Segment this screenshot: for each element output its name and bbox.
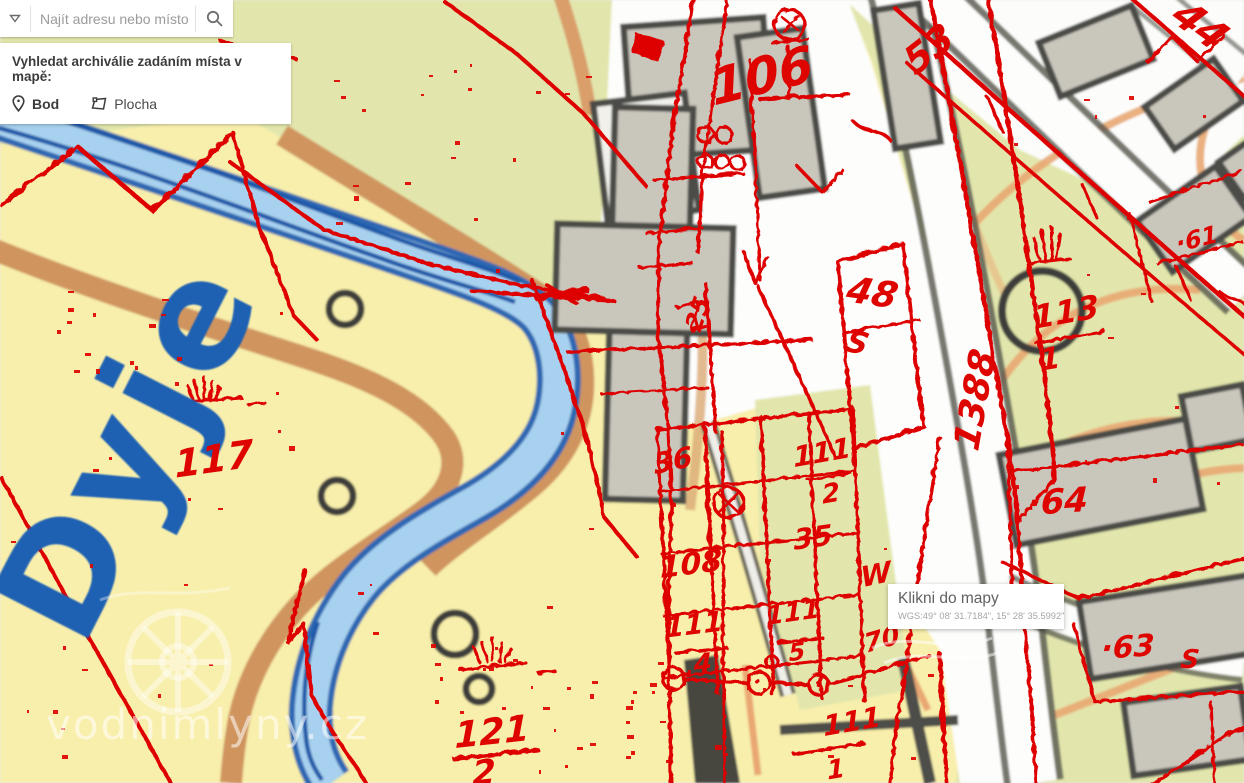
option-plocha-label: Plocha [114, 96, 157, 112]
archive-search-panel: Vyhledat archiválie zadáním místa v mapě… [0, 43, 291, 124]
dropdown-arrow-icon [9, 14, 21, 23]
panel-title: Vyhledat archiválie zadáním místa v mapě… [12, 54, 279, 84]
search-icon [206, 10, 224, 28]
tooltip-title: Klikni do mapy [898, 590, 1054, 608]
panel-options: Bod Plocha [12, 95, 279, 112]
polygon-area-icon [91, 97, 107, 111]
option-bod[interactable]: Bod [12, 95, 59, 112]
search-button[interactable] [196, 0, 233, 37]
tooltip-wgs-coordinates: WGS:49° 08' 31.7184", 15° 28' 35.5992" [898, 611, 1054, 621]
search-dropdown-toggle[interactable] [0, 0, 30, 37]
map-application: 1065344117121248S13881131·64·63S·6136108… [0, 0, 1244, 783]
search-input[interactable] [31, 0, 195, 37]
option-bod-label: Bod [32, 96, 59, 112]
map-click-tooltip: Klikni do mapy WGS:49° 08' 31.7184", 15°… [888, 584, 1064, 629]
option-plocha[interactable]: Plocha [91, 96, 157, 112]
search-bar [0, 0, 233, 37]
point-pin-icon [12, 95, 25, 112]
